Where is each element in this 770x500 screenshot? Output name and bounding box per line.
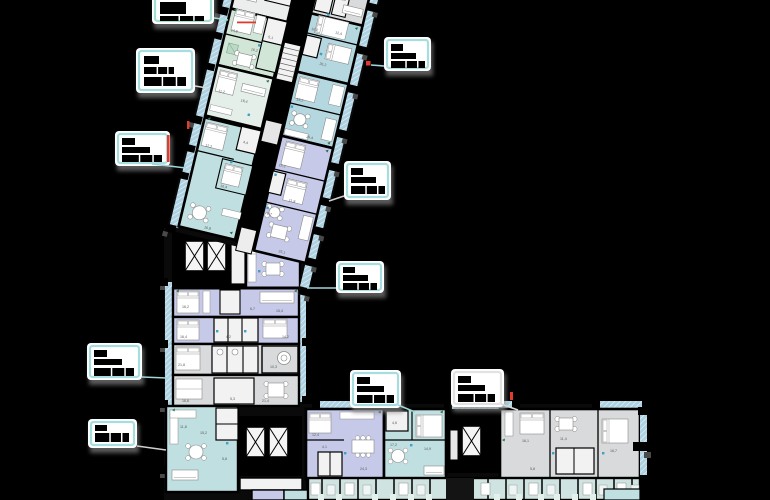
svg-text:4,2: 4,2 <box>226 335 231 339</box>
svg-text:5,3: 5,3 <box>230 397 235 401</box>
svg-text:5,8: 5,8 <box>222 457 227 461</box>
svg-text:4,6: 4,6 <box>392 421 397 425</box>
svg-text:24,3: 24,3 <box>360 467 367 471</box>
svg-text:10,3: 10,3 <box>270 365 277 369</box>
svg-text:16,2: 16,2 <box>182 305 189 309</box>
svg-text:21,4: 21,4 <box>262 399 269 403</box>
svg-text:16,1: 16,1 <box>522 439 529 443</box>
svg-text:12,4: 12,4 <box>312 433 319 437</box>
svg-text:11,4: 11,4 <box>560 437 567 441</box>
svg-text:11,8: 11,8 <box>180 425 187 429</box>
svg-text:15,2: 15,2 <box>200 431 207 435</box>
svg-text:15,4: 15,4 <box>276 309 283 313</box>
svg-text:6,7: 6,7 <box>250 307 255 311</box>
svg-text:5,8: 5,8 <box>530 467 535 471</box>
svg-text:4,1: 4,1 <box>322 445 327 449</box>
svg-text:16,7: 16,7 <box>610 449 617 453</box>
svg-text:14,2: 14,2 <box>282 335 289 339</box>
svg-text:21,8: 21,8 <box>178 363 185 367</box>
svg-text:17,2: 17,2 <box>390 443 397 447</box>
svg-text:16,6: 16,6 <box>182 399 189 403</box>
svg-text:14,9: 14,9 <box>424 447 431 451</box>
svg-text:16,4: 16,4 <box>180 335 187 339</box>
